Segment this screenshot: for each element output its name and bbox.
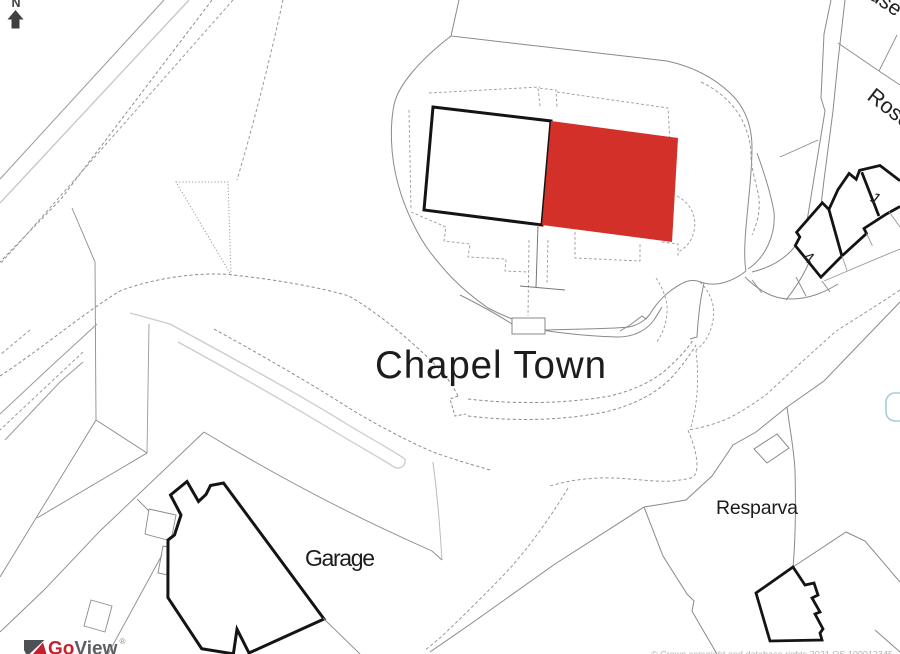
svg-text:GoView: GoView [48,639,118,654]
svg-text:© Crown copyright and database: © Crown copyright and database rights 20… [651,650,894,654]
svg-text:®: ® [120,637,126,646]
svg-text:Garage: Garage [305,545,375,571]
svg-text:Resparva: Resparva [716,497,798,519]
svg-text:Chapel Town: Chapel Town [375,344,606,387]
svg-text:N: N [12,0,21,10]
